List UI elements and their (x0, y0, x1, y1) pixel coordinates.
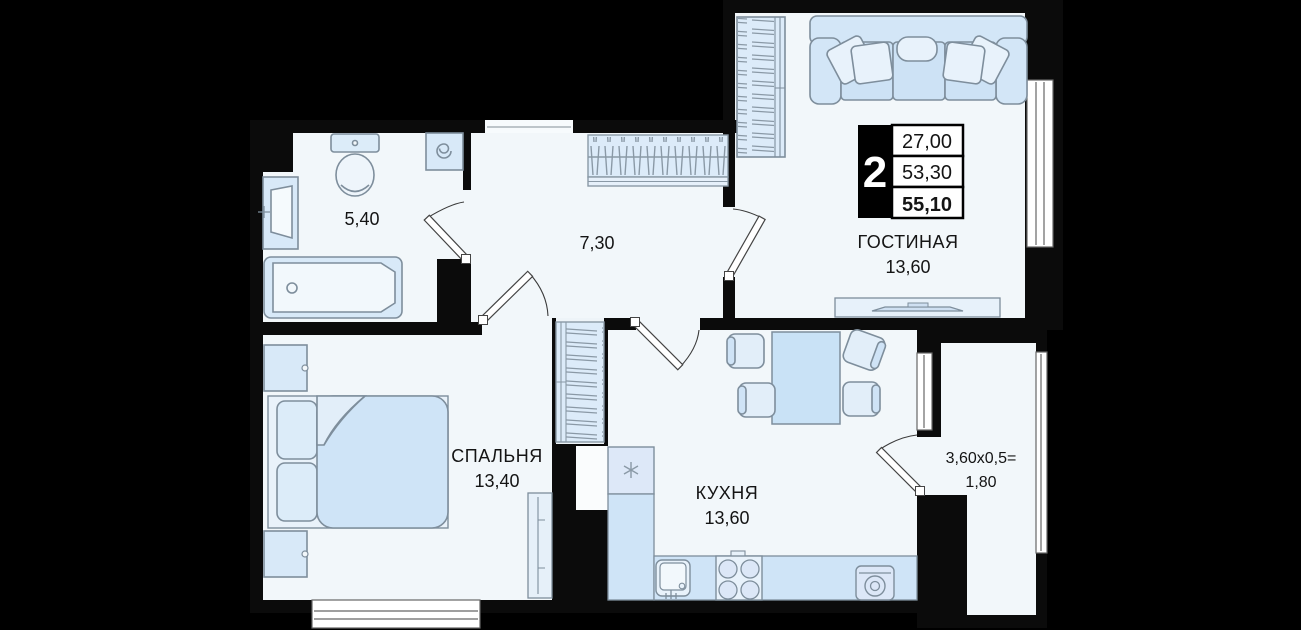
sofa-cushion-center-icon (897, 37, 937, 61)
wall-balcony-lower-left (930, 495, 967, 615)
hallway-closet-icon (556, 322, 604, 442)
wall-top-right-of-entrance (573, 120, 737, 133)
wall-balcony-bottom (941, 615, 1047, 628)
opening-bedroom-door (482, 322, 552, 335)
living-window-icon (1027, 80, 1053, 247)
bedroom-name-label: СПАЛЬНЯ (451, 446, 542, 466)
wall-living-left-lower (723, 277, 735, 318)
opening-bathroom-door (463, 190, 471, 259)
wall-left-outer (250, 133, 263, 613)
dining-table-icon (772, 332, 840, 424)
wall-niche (576, 446, 608, 510)
wall-kitchen-top-right (700, 318, 723, 330)
wall-top-left (250, 120, 485, 133)
wall-living-bottom (723, 318, 1063, 330)
info-box: 2 27,00 53,30 55,10 (858, 125, 963, 218)
wall-bathroom-bedroom (250, 322, 482, 335)
living-name-label: ГОСТИНАЯ (857, 232, 958, 252)
kitchen-name-label: КУХНЯ (696, 483, 759, 503)
entrance-opening (485, 120, 573, 133)
kitchen-balcony-window-icon (917, 353, 932, 430)
wall-balcony-top (930, 330, 1047, 343)
balcony-window-icon (1036, 352, 1047, 553)
bathtub-icon (264, 257, 402, 318)
bathroom-sink-icon (258, 177, 298, 249)
balcony-area-label: 1,80 (965, 474, 996, 491)
bathroom-washing-machine-icon (426, 133, 463, 170)
bedroom-area-label: 13,40 (474, 471, 519, 491)
nightstand-top-icon (264, 345, 308, 391)
hallway-area-label: 7,30 (579, 233, 614, 253)
hallway-wardrobe-icon (588, 135, 728, 186)
kitchen-area-label: 13,60 (704, 508, 749, 528)
floor-plan-page: 2 27,00 53,30 55,10 (0, 0, 1301, 630)
wall-bottom-step (917, 613, 941, 628)
tv-stand-icon (835, 298, 1000, 317)
sofa-icon (810, 16, 1027, 104)
living-area-label: 13,60 (885, 257, 930, 277)
area-apartment-value: 53,30 (902, 162, 952, 184)
dining-chair-icon (843, 382, 880, 416)
living-wardrobe-icon (737, 17, 785, 157)
fridge-icon (608, 447, 654, 494)
rooms-count: 2 (863, 148, 887, 197)
area-total-value: 55,10 (902, 194, 952, 216)
bedroom-wardrobe-icon (528, 493, 552, 598)
floor-plan: 2 27,00 53,30 55,10 (0, 0, 1301, 630)
balcony-formula-label: 3,60x0,5= (946, 450, 1017, 467)
bedroom-window-icon (312, 600, 480, 628)
kitchen-washer-icon (856, 566, 894, 600)
area-living-value: 27,00 (902, 131, 952, 153)
stove-icon (716, 551, 762, 600)
bathroom-area-label: 5,40 (344, 209, 379, 229)
dining-chair-icon (738, 383, 775, 417)
wall-bathroom-right-pier (437, 259, 471, 322)
nightstand-bottom-icon (264, 531, 308, 577)
kitchen-sink-icon (656, 560, 690, 599)
dining-chair-icon (727, 334, 764, 368)
bed-icon (268, 396, 448, 528)
wall-bathroom-right-upper (463, 133, 471, 190)
wall-living-top (723, 0, 1063, 13)
